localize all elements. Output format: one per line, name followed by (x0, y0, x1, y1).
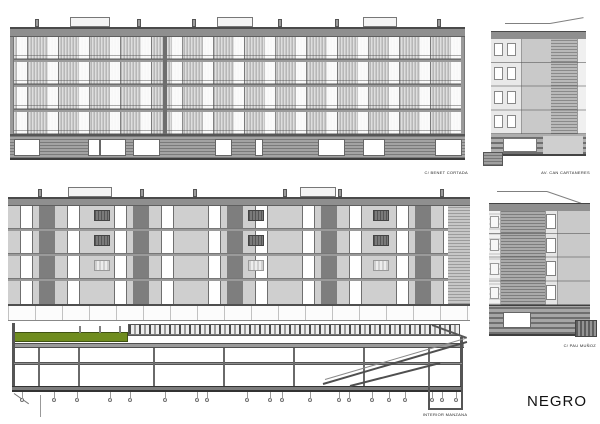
column (223, 348, 225, 386)
pile-line (40, 395, 41, 417)
street-label-pau-munoz: C/ PAU MUÑOZ (546, 343, 596, 348)
storefront-window (100, 139, 126, 156)
pile-marker (268, 398, 272, 402)
facade-floor (8, 231, 470, 253)
facade-edge (10, 37, 14, 134)
parapet-band (491, 31, 586, 39)
roof-vent-icon (137, 19, 141, 27)
roof-box (217, 17, 253, 27)
vent-grille (373, 210, 389, 221)
facade-edge (461, 37, 465, 134)
roof-vent-icon (38, 189, 42, 197)
storefront-window (14, 139, 40, 156)
railing-post (119, 326, 121, 333)
vent-grille (248, 235, 264, 246)
pile-marker (75, 398, 79, 402)
floor-lines (491, 39, 586, 134)
pile-marker (308, 398, 312, 402)
pile-marker (20, 398, 24, 402)
facade-body (491, 39, 586, 134)
pile-marker (403, 398, 407, 402)
side-elevation-pau-munoz (483, 186, 597, 338)
ground-floor-glazing (8, 304, 470, 321)
pile-marker (128, 398, 132, 402)
expansion-joint (163, 37, 167, 134)
storefront-door (363, 139, 385, 156)
section-label-interior-manzana: INTERIOR MANZANA (420, 412, 470, 417)
pile-marker (245, 398, 249, 402)
railing-post (99, 326, 101, 333)
storefront-window (318, 139, 345, 156)
elevation-interior-manzana (8, 186, 470, 323)
column (38, 348, 40, 386)
storefront-door (255, 139, 263, 156)
roof-slope-line (547, 191, 581, 204)
pile-marker (195, 398, 199, 402)
facade-floor (10, 87, 465, 109)
roof-box (363, 17, 397, 27)
roof-vent-icon (335, 19, 339, 27)
pile-marker (347, 398, 351, 402)
vent-grille (248, 260, 264, 271)
roof-vent-icon (437, 19, 441, 27)
vent-grille (248, 210, 264, 221)
facade-floor (10, 112, 465, 134)
roof-vent-icon (440, 189, 444, 197)
roof-vent-icon (193, 189, 197, 197)
paving-hatch (128, 324, 460, 336)
roof-vent-icon (192, 19, 196, 27)
roof-box (68, 187, 112, 197)
elevation-benet-cortada (10, 16, 465, 160)
storefront-window (435, 139, 462, 156)
column (78, 348, 80, 386)
facade-floor (8, 256, 470, 278)
floor-lines (489, 211, 590, 305)
pile-marker (370, 398, 374, 402)
facade-panels (8, 206, 470, 304)
vent-grille (373, 260, 389, 271)
foundation-slab (12, 386, 463, 392)
pile-marker (454, 398, 458, 402)
green-roof-strip (14, 332, 128, 342)
column (153, 348, 155, 386)
pile-marker (205, 398, 209, 402)
parapet-band (8, 197, 470, 206)
pile-marker (430, 398, 434, 402)
roof-box (300, 187, 336, 197)
facade-body (489, 211, 590, 305)
pile-marker (387, 398, 391, 402)
parapet-band (489, 203, 590, 211)
roof-vent-icon (278, 19, 282, 27)
basement-box (483, 152, 503, 166)
pile-marker (440, 398, 444, 402)
facade-louvered (10, 37, 465, 134)
project-title: NEGRO (527, 393, 587, 410)
basement-wall-left (12, 323, 15, 389)
pile-marker (337, 398, 341, 402)
storefront-window (215, 139, 232, 156)
storefront-window (133, 139, 160, 156)
roof-slope-line (550, 17, 584, 24)
pile-marker (163, 398, 167, 402)
street-label-benet-cortada: C/ BENET CORTADA (410, 170, 468, 175)
side-elevation-can-cartaneres (483, 14, 595, 168)
vent-grille (94, 210, 110, 221)
railing-post (79, 326, 81, 333)
roof-railing-line (497, 191, 547, 192)
vent-grille (94, 235, 110, 246)
storefront-door (88, 139, 100, 156)
pile-marker (280, 398, 284, 402)
vent-grille (94, 260, 110, 271)
facade-siding-strip (448, 206, 470, 304)
roof-vent-icon (283, 189, 287, 197)
parapet-band (10, 27, 465, 37)
roof-box (70, 17, 110, 27)
roof-vent-icon (35, 19, 39, 27)
roof-vent-icon (338, 189, 342, 197)
column (293, 348, 295, 386)
vent-grille (373, 235, 389, 246)
corner-hatched-box (575, 320, 597, 337)
facade-floor (10, 62, 465, 84)
ground-floor (491, 134, 586, 156)
facade-floor (10, 37, 465, 59)
facade-floor (8, 206, 470, 228)
facade-floor (8, 281, 470, 304)
roof-vent-icon (140, 189, 144, 197)
pile-marker (108, 398, 112, 402)
street-label-can-cartaneres: AV. CAN CARTANERES (538, 170, 590, 175)
storefront-window (503, 138, 537, 152)
storefront-window (503, 312, 531, 328)
ground-panel (543, 136, 583, 154)
section-interior-manzana (8, 323, 470, 421)
roof-railing-line (505, 23, 550, 24)
pile-marker (52, 398, 56, 402)
ground-floor (10, 134, 465, 160)
sheet: { "project": { "name": "NEGRO" }, "docum… (0, 0, 600, 424)
